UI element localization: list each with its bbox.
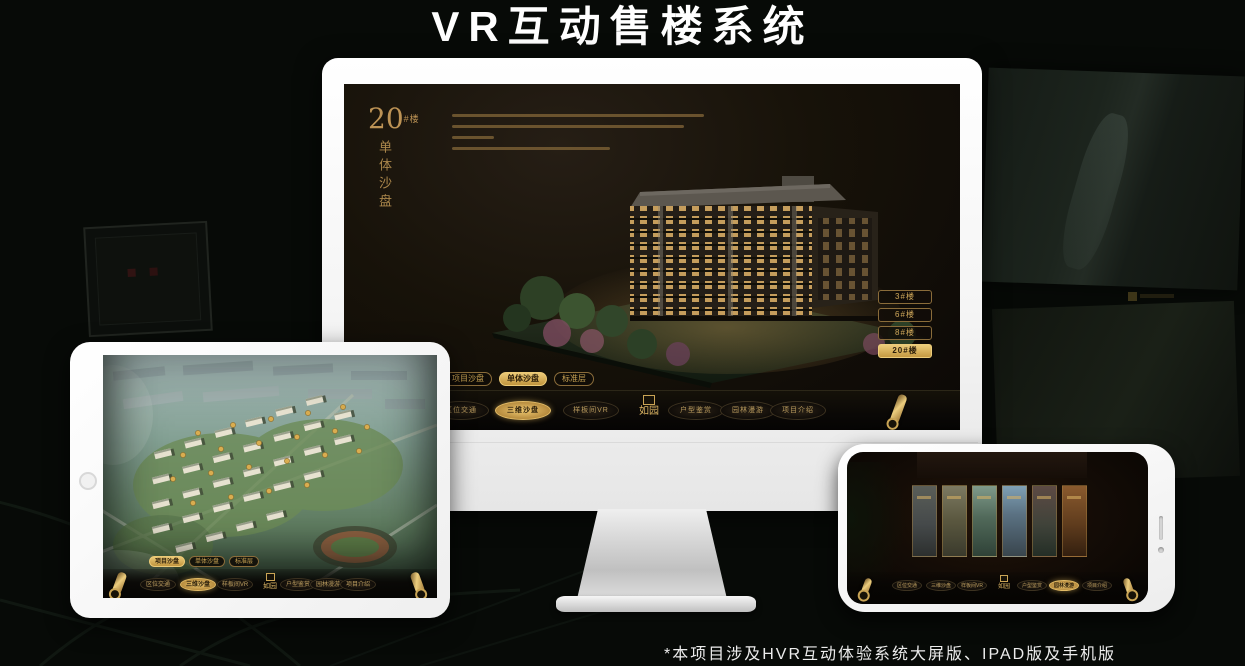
ipad-nav-item-sandbox[interactable]: 三维沙盘 [180, 578, 216, 591]
page-title: VR互动售楼系统 [431, 3, 813, 50]
floor-button-6[interactable]: 6#楼 [878, 308, 932, 322]
award-plaque-decor [83, 221, 213, 337]
gallery-panel[interactable] [942, 485, 967, 557]
text-line-decor [452, 125, 684, 128]
phone-nav-item-location[interactable]: 区位交通 [892, 580, 922, 591]
monitor-stand-neck [577, 509, 727, 599]
ipad-device: 项目沙盘 单体沙盘 标准层 区位交通 三维沙盘 样板间VR 如园 户型鉴赏 园林… [70, 342, 450, 618]
gallery-panel[interactable] [1002, 485, 1027, 557]
ipad-navbar: 区位交通 三维沙盘 样板间VR 如园 户型鉴赏 园林漫游 项目介绍 [103, 569, 437, 598]
gallery-panel[interactable] [972, 485, 997, 557]
ipad-nav-item-intro[interactable]: 项目介绍 [340, 578, 376, 591]
scroll-handle-icon[interactable] [860, 577, 872, 595]
floor-hero-title: 20#楼 单体沙盘 [368, 106, 420, 216]
monitor-subtabs: 项目沙盘 单体沙盘 标准层 [444, 372, 594, 386]
ipad-nav-item-location[interactable]: 区位交通 [140, 578, 176, 591]
gallery-panel[interactable] [1032, 485, 1057, 557]
subtab-single-sandbox[interactable]: 单体沙盘 [499, 372, 547, 386]
subtab-project-sandbox[interactable]: 项目沙盘 [444, 372, 492, 386]
phone-screen: 区位交通 三维沙盘 样板间VR 如园 户型鉴赏 园林漫游 项目介绍 [847, 452, 1148, 604]
scroll-handle-icon[interactable] [889, 393, 908, 424]
monitor-stand-base [556, 596, 756, 612]
interior-ceiling-decor [917, 452, 1087, 478]
phone-nav-item-floorplan[interactable]: 户型鉴赏 [1017, 580, 1047, 591]
text-line-decor [452, 114, 704, 117]
phone-nav-logo: 如园 [995, 575, 1013, 590]
aerial-photo-decor [981, 68, 1244, 291]
brand-mark-decor [1128, 292, 1137, 301]
floor-number-suffix: #楼 [404, 114, 420, 124]
floor-button-20[interactable]: 20#楼 [878, 344, 932, 358]
hero-subtitle-vertical: 单体沙盘 [374, 140, 393, 216]
floor-selector: 3#楼 6#楼 8#楼 20#楼 [878, 290, 932, 362]
phone-nav-item-sandbox[interactable]: 三维沙盘 [926, 580, 956, 591]
floor-button-3[interactable]: 3#楼 [878, 290, 932, 304]
monitor-nav-item-sandbox[interactable]: 三维沙盘 [495, 401, 551, 420]
earpiece-speaker [1159, 516, 1163, 540]
ipad-subtab-single-sandbox[interactable]: 单体沙盘 [189, 556, 225, 567]
gallery-panel[interactable] [1062, 485, 1087, 557]
logo-text: 如园 [259, 582, 281, 590]
smartphone-device: 区位交通 三维沙盘 样板间VR 如园 户型鉴赏 园林漫游 项目介绍 [838, 444, 1175, 612]
seal-icon [643, 395, 655, 405]
monitor-nav-item-intro[interactable]: 项目介绍 [770, 401, 826, 420]
ipad-screen: 项目沙盘 单体沙盘 标准层 区位交通 三维沙盘 样板间VR 如园 户型鉴赏 园林… [103, 355, 437, 598]
scroll-handle-icon[interactable] [410, 571, 426, 595]
floor-number: 20 [368, 102, 404, 135]
monitor-nav-item-vr[interactable]: 样板间VR [563, 401, 619, 420]
phone-navbar: 区位交通 三维沙盘 样板间VR 如园 户型鉴赏 园林漫游 项目介绍 [847, 572, 1148, 604]
ipad-nav-item-vr[interactable]: 样板间VR [217, 578, 253, 591]
logo-text: 如园 [633, 406, 665, 417]
monitor-nav-logo: 如园 [633, 395, 665, 417]
scroll-handle-icon[interactable] [1122, 577, 1134, 595]
seal-icon [1000, 575, 1008, 582]
seal-icon [266, 573, 275, 581]
ipad-nav-logo: 如园 [259, 573, 281, 590]
ipad-subtabs: 项目沙盘 单体沙盘 标准层 [149, 556, 259, 567]
monitor-nav-item-garden[interactable]: 园林漫游 [720, 401, 776, 420]
ipad-subtab-project-sandbox[interactable]: 项目沙盘 [149, 556, 185, 567]
gallery-panel[interactable] [912, 485, 937, 557]
gallery-panels [912, 485, 1092, 557]
building-3d-model[interactable] [482, 148, 932, 388]
floor-button-8[interactable]: 8#楼 [878, 326, 932, 340]
home-button[interactable] [79, 472, 97, 490]
phone-nav-item-vr[interactable]: 样板间VR [957, 580, 987, 591]
subtab-standard-floor[interactable]: 标准层 [554, 372, 594, 386]
banner: VR互动售楼系统 [0, 0, 1245, 56]
page: VR互动售楼系统 20#楼 单体沙盘 [0, 0, 1245, 666]
text-line-decor [452, 136, 494, 139]
logo-text: 如园 [995, 583, 1013, 590]
front-camera [1158, 547, 1164, 553]
phone-nav-item-garden[interactable]: 园林漫游 [1049, 580, 1079, 591]
scroll-handle-icon[interactable] [112, 571, 128, 595]
footnote-caption: *本项目涉及HVR互动体验系统大屏版、IPAD版及手机版 [664, 640, 1116, 664]
phone-nav-item-intro[interactable]: 项目介绍 [1082, 580, 1112, 591]
monitor-nav-item-floorplan[interactable]: 户型鉴赏 [668, 401, 724, 420]
ipad-subtab-standard-floor[interactable]: 标准层 [229, 556, 259, 567]
